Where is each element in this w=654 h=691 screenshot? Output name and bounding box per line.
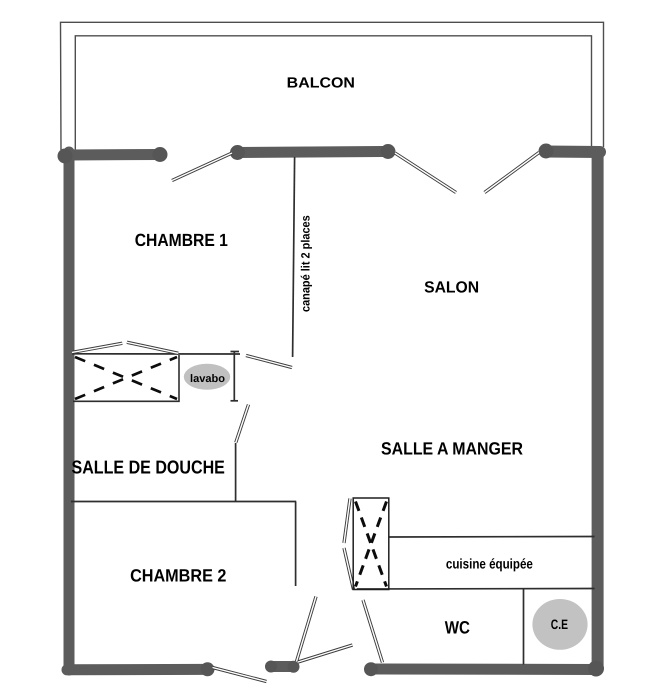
svg-text:cuisine équipée: cuisine équipée — [446, 556, 533, 572]
svg-text:WC: WC — [445, 617, 470, 637]
svg-text:canapé lit 2 places: canapé lit 2 places — [299, 215, 313, 312]
svg-text:CHAMBRE 1: CHAMBRE 1 — [135, 230, 228, 250]
svg-text:C.E: C.E — [551, 617, 568, 632]
svg-text:CHAMBRE 2: CHAMBRE 2 — [130, 566, 226, 586]
svg-text:lavabo: lavabo — [190, 373, 225, 385]
svg-text:BALCON: BALCON — [287, 76, 355, 92]
svg-text:SALLE DE DOUCHE: SALLE DE DOUCHE — [72, 456, 225, 477]
svg-text:SALON: SALON — [424, 279, 479, 297]
svg-text:SALLE A MANGER: SALLE A MANGER — [381, 439, 523, 459]
